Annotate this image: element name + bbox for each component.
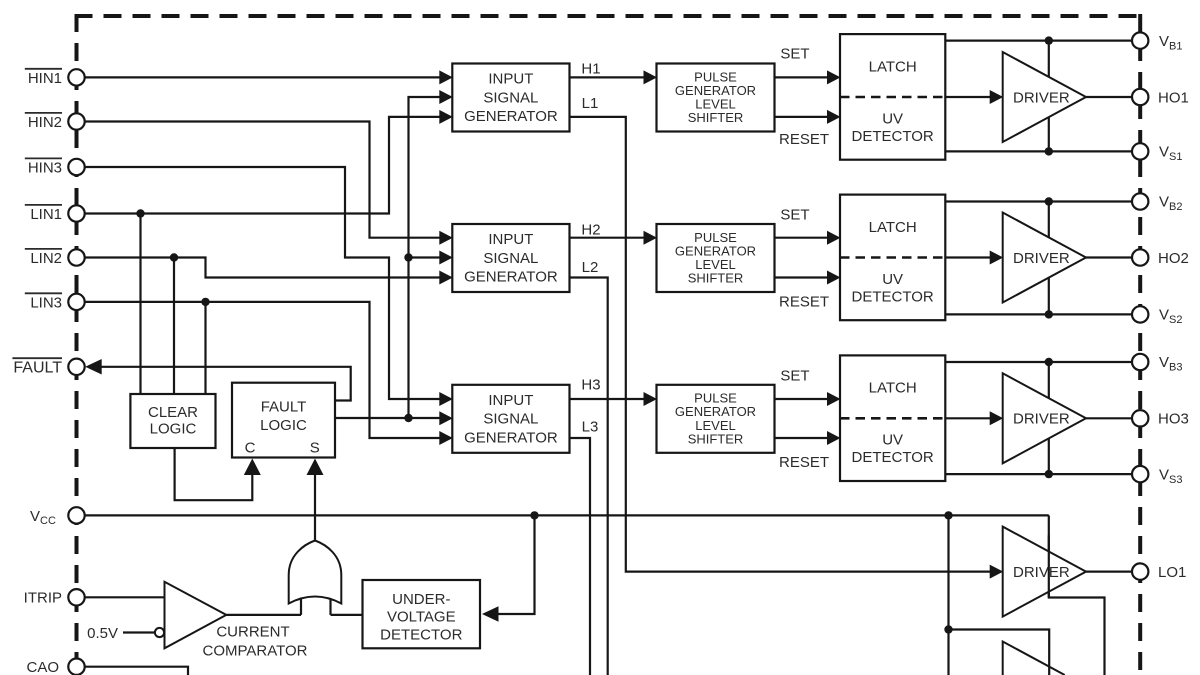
- svg-text:DETECTOR: DETECTOR: [852, 128, 934, 145]
- svg-text:S: S: [310, 439, 320, 456]
- svg-text:UNDER-: UNDER-: [392, 591, 450, 608]
- svg-text:DETECTOR: DETECTOR: [380, 626, 462, 643]
- svg-text:RESET: RESET: [779, 454, 829, 471]
- svg-text:HIN1: HIN1: [28, 70, 62, 87]
- svg-text:HO1: HO1: [1158, 89, 1189, 106]
- svg-text:SET: SET: [780, 207, 809, 224]
- svg-text:LATCH: LATCH: [869, 380, 917, 397]
- svg-text:INPUT: INPUT: [488, 392, 533, 409]
- svg-text:ITRIP: ITRIP: [24, 590, 62, 607]
- svg-text:DRIVER: DRIVER: [1013, 564, 1070, 581]
- svg-text:HIN2: HIN2: [28, 114, 62, 131]
- svg-text:SHIFTER: SHIFTER: [688, 270, 744, 285]
- svg-text:HO2: HO2: [1158, 250, 1189, 267]
- svg-text:SET: SET: [780, 45, 809, 62]
- svg-text:DRIVER: DRIVER: [1013, 250, 1070, 267]
- svg-text:L1: L1: [582, 95, 599, 112]
- svg-text:FAULT: FAULT: [261, 398, 307, 415]
- svg-text:CURRENT: CURRENT: [216, 623, 289, 640]
- svg-text:RESET: RESET: [779, 131, 829, 148]
- svg-text:LIN2: LIN2: [30, 250, 62, 267]
- svg-text:RESET: RESET: [779, 293, 829, 310]
- svg-text:DETECTOR: DETECTOR: [852, 449, 934, 466]
- svg-text:LATCH: LATCH: [869, 219, 917, 236]
- svg-text:LATCH: LATCH: [869, 58, 917, 75]
- svg-text:SHIFTER: SHIFTER: [688, 431, 744, 446]
- svg-text:SIGNAL: SIGNAL: [483, 411, 538, 428]
- svg-text:HIN3: HIN3: [28, 159, 62, 176]
- svg-text:UV: UV: [882, 432, 903, 449]
- svg-text:COMPARATOR: COMPARATOR: [202, 642, 307, 659]
- svg-text:LOGIC: LOGIC: [150, 420, 197, 437]
- svg-text:VOLTAGE: VOLTAGE: [387, 608, 456, 625]
- svg-text:LOGIC: LOGIC: [260, 417, 307, 434]
- svg-text:LO1: LO1: [1158, 564, 1186, 581]
- svg-text:DRIVER: DRIVER: [1013, 411, 1070, 428]
- svg-text:UV: UV: [882, 271, 903, 288]
- svg-text:GENERATOR: GENERATOR: [464, 429, 558, 446]
- svg-text:SHIFTER: SHIFTER: [688, 110, 744, 125]
- svg-text:H3: H3: [581, 376, 600, 393]
- svg-text:DETECTOR: DETECTOR: [852, 288, 934, 305]
- svg-text:LIN1: LIN1: [30, 206, 62, 223]
- svg-text:SIGNAL: SIGNAL: [483, 89, 538, 106]
- svg-text:GENERATOR: GENERATOR: [464, 108, 558, 125]
- svg-text:CLEAR: CLEAR: [148, 404, 198, 421]
- svg-text:C: C: [245, 439, 256, 456]
- svg-text:L2: L2: [582, 259, 599, 276]
- svg-text:CAO: CAO: [26, 659, 59, 675]
- svg-text:GENERATOR: GENERATOR: [464, 269, 558, 286]
- svg-text:0.5V: 0.5V: [87, 625, 118, 642]
- svg-text:SET: SET: [780, 367, 809, 384]
- svg-text:HO3: HO3: [1158, 411, 1189, 428]
- svg-text:LIN3: LIN3: [30, 294, 62, 311]
- svg-text:UV: UV: [882, 110, 903, 127]
- svg-text:INPUT: INPUT: [488, 71, 533, 88]
- svg-text:DRIVER: DRIVER: [1013, 89, 1070, 106]
- svg-text:H1: H1: [581, 60, 600, 77]
- svg-text:INPUT: INPUT: [488, 231, 533, 248]
- svg-text:SIGNAL: SIGNAL: [483, 250, 538, 267]
- svg-text:H2: H2: [581, 221, 600, 238]
- svg-text:FAULT: FAULT: [13, 360, 62, 377]
- svg-text:L3: L3: [582, 418, 599, 435]
